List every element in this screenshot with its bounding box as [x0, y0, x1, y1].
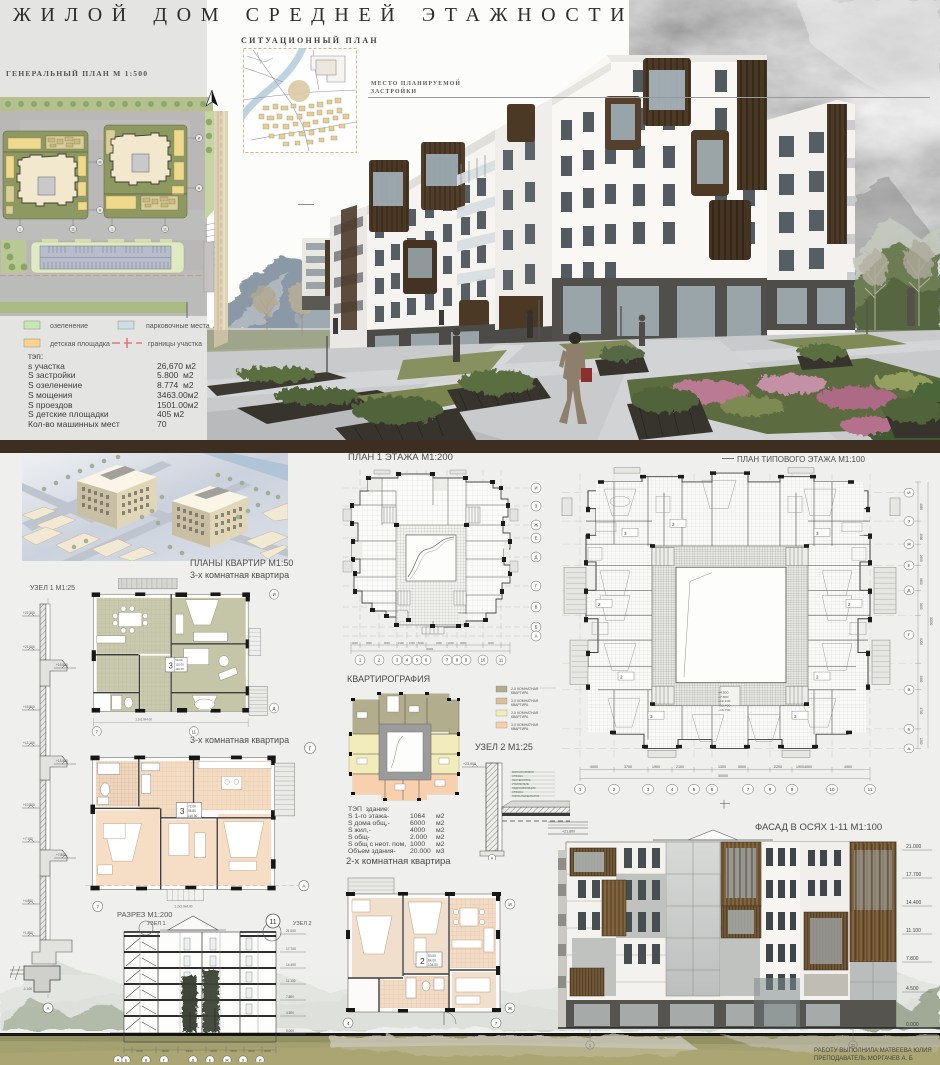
- svg-text:Д: Д: [192, 1058, 195, 1063]
- svg-text:А: А: [908, 746, 911, 751]
- svg-text:11: 11: [163, 227, 167, 231]
- svg-text:14.400: 14.400: [906, 900, 922, 906]
- svg-text:1200: 1200: [919, 738, 923, 745]
- svg-text:1: 1: [589, 1043, 592, 1048]
- svg-text:В: В: [145, 1058, 148, 1063]
- svg-text:4000: 4000: [590, 765, 598, 769]
- svg-text:+4.800: +4.800: [23, 899, 33, 903]
- svg-text:+10.800: +10.800: [23, 803, 35, 807]
- svg-text:6500: 6500: [186, 1049, 193, 1053]
- svg-text:+16.800: +16.800: [23, 705, 35, 709]
- svg-text:+13.800: +13.800: [56, 759, 68, 763]
- svg-text:А: А: [46, 1006, 49, 1011]
- svg-text:4000: 4000: [804, 765, 812, 769]
- svg-text:КВАРТИРА: КВАРТИРА: [511, 703, 529, 707]
- svg-text:104.00: 104.00: [428, 963, 438, 967]
- svg-text:+22.300: +22.300: [23, 611, 35, 615]
- svg-text:7.800: 7.800: [906, 956, 919, 962]
- svg-text:3700: 3700: [624, 765, 632, 769]
- svg-text:3500: 3500: [230, 1049, 237, 1053]
- svg-text:3600: 3600: [919, 578, 923, 585]
- svg-text:Г: Г: [309, 747, 312, 753]
- svg-text:Б: Б: [908, 727, 911, 732]
- svg-text:4000: 4000: [352, 641, 358, 645]
- svg-text:95.80: 95.80: [188, 809, 196, 813]
- svg-text:5000: 5000: [418, 641, 424, 645]
- svg-text:+19.800: +19.800: [56, 663, 68, 667]
- svg-text:4.500: 4.500: [906, 986, 919, 992]
- svg-text:+21.800: +21.800: [562, 830, 575, 834]
- svg-text:Е: Е: [209, 1058, 212, 1063]
- svg-text:3: 3: [180, 806, 185, 816]
- svg-text:10: 10: [829, 787, 835, 792]
- svg-text:2200: 2200: [774, 765, 782, 769]
- svg-text:2000: 2000: [448, 641, 454, 645]
- svg-text:4700: 4700: [136, 1049, 143, 1053]
- svg-text:Е: Е: [908, 563, 911, 568]
- svg-text:3600: 3600: [210, 1049, 217, 1053]
- svg-text:КВАРТИРА: КВАРТИРА: [511, 691, 529, 695]
- svg-text:3600: 3600: [366, 641, 372, 645]
- svg-text:2000: 2000: [436, 641, 442, 645]
- svg-text:+1.800: +1.800: [23, 931, 33, 935]
- svg-text:границы участка: границы участка: [148, 341, 202, 348]
- svg-text:116.00: 116.00: [175, 667, 184, 671]
- svg-text:+7.100: +7.100: [23, 837, 33, 841]
- svg-text:1.2х2.9х4.00: 1.2х2.9х4.00: [135, 718, 152, 722]
- svg-text:Д: Д: [273, 706, 276, 711]
- svg-text:6200: 6200: [919, 638, 923, 645]
- svg-text:0.000: 0.000: [286, 1029, 294, 1033]
- svg-text:М: М: [99, 160, 102, 164]
- svg-text:11: 11: [192, 729, 197, 734]
- svg-text:11.100: 11.100: [286, 979, 296, 983]
- svg-text:детская площадка: детская площадка: [50, 341, 110, 348]
- svg-text:КВАРТИРА: КВАРТИРА: [511, 715, 529, 719]
- svg-text:И: И: [907, 490, 910, 495]
- svg-text:Б: Б: [125, 1058, 128, 1063]
- svg-text:11: 11: [71, 227, 75, 231]
- svg-text:7: 7: [495, 1021, 498, 1026]
- svg-text:21.000: 21.000: [906, 844, 922, 850]
- svg-text:2600: 2600: [919, 533, 923, 540]
- svg-text:11.100: 11.100: [906, 928, 921, 934]
- svg-text:+7.800: +7.800: [56, 853, 66, 857]
- svg-text:11: 11: [269, 919, 276, 926]
- svg-text:30000: 30000: [426, 647, 434, 651]
- svg-text:30000: 30000: [929, 617, 933, 626]
- svg-text:И: И: [534, 486, 537, 491]
- svg-text:+16.700: +16.700: [718, 708, 731, 712]
- svg-text:Ж: Ж: [907, 542, 911, 547]
- svg-text:И: И: [198, 136, 201, 140]
- svg-text:И: И: [273, 592, 276, 597]
- svg-text:1.2х2.9х4.00: 1.2х2.9х4.00: [174, 904, 192, 908]
- svg-text:30000: 30000: [718, 774, 728, 778]
- svg-text:А: А: [117, 1058, 120, 1063]
- svg-text:+13.400: +13.400: [718, 704, 731, 708]
- svg-text:3: 3: [169, 661, 174, 670]
- svg-text:59.00: 59.00: [175, 658, 182, 662]
- svg-text:11: 11: [499, 658, 504, 663]
- svg-text:4.500: 4.500: [286, 1011, 294, 1015]
- svg-text:4: 4: [347, 1021, 350, 1026]
- svg-text:Д: Д: [908, 588, 911, 593]
- svg-text:53.00: 53.00: [428, 954, 436, 958]
- svg-text:В: В: [535, 605, 538, 610]
- svg-text:110.00: 110.00: [188, 814, 197, 818]
- svg-text:4000: 4000: [844, 765, 852, 769]
- svg-text:+7.800: +7.800: [718, 695, 729, 699]
- svg-text:Ж: Ж: [534, 523, 538, 528]
- svg-text:72.00: 72.00: [188, 804, 196, 808]
- svg-text:3000: 3000: [162, 1049, 169, 1053]
- svg-text:3900: 3900: [919, 676, 923, 683]
- svg-text:+4.500: +4.500: [718, 691, 729, 695]
- svg-text:Д: Д: [535, 555, 538, 560]
- svg-text:14.400: 14.400: [286, 963, 296, 967]
- svg-text:4000: 4000: [264, 1049, 271, 1053]
- svg-text:Ж: Ж: [225, 1058, 229, 1063]
- svg-text:2100: 2100: [398, 641, 404, 645]
- svg-text:Е: Е: [535, 536, 538, 541]
- svg-text:1900: 1900: [652, 765, 660, 769]
- svg-text:3600: 3600: [919, 603, 923, 610]
- svg-text:3600: 3600: [460, 641, 466, 645]
- svg-text:7.800: 7.800: [286, 995, 294, 999]
- svg-text:+23.000: +23.000: [463, 762, 476, 766]
- svg-text:КВАРТИРА: КВАРТИРА: [511, 727, 529, 731]
- svg-text:Б: Б: [535, 625, 538, 630]
- svg-text:И: И: [508, 902, 511, 907]
- svg-text:А: А: [535, 634, 538, 639]
- svg-text:2: 2: [420, 956, 425, 966]
- svg-text:1300: 1300: [718, 765, 726, 769]
- svg-text:1900: 1900: [796, 765, 804, 769]
- svg-text:17.700: 17.700: [286, 947, 296, 951]
- svg-text:4060: 4060: [919, 503, 923, 510]
- svg-text:17.700: 17.700: [906, 872, 922, 878]
- svg-text:4700: 4700: [919, 708, 923, 715]
- svg-text:21.000: 21.000: [286, 929, 296, 933]
- svg-text:1500: 1500: [409, 641, 415, 645]
- svg-text:2100: 2100: [676, 765, 684, 769]
- svg-text:5000: 5000: [738, 765, 746, 769]
- svg-text:+10.100: +10.100: [718, 699, 731, 703]
- svg-text:10: 10: [481, 658, 486, 663]
- svg-text:84.00: 84.00: [428, 959, 436, 963]
- svg-text:110.00: 110.00: [175, 662, 184, 666]
- svg-text:1: 1: [19, 227, 21, 231]
- svg-text:2650: 2650: [919, 555, 923, 562]
- svg-text:И: И: [259, 1058, 262, 1063]
- svg-text:0.000: 0.000: [906, 1022, 919, 1028]
- svg-text:3600: 3600: [248, 1049, 255, 1053]
- svg-text:+21.000: +21.000: [23, 645, 35, 649]
- svg-text:4000: 4000: [488, 641, 494, 645]
- svg-text:парковочные места: парковочные места: [146, 323, 210, 330]
- svg-text:11: 11: [868, 787, 873, 792]
- svg-text:11: 11: [851, 1043, 856, 1048]
- svg-text:1: 1: [111, 227, 113, 231]
- svg-text:В: В: [908, 687, 911, 692]
- svg-text:озеленение: озеленение: [50, 323, 88, 330]
- svg-text:+13.100: +13.100: [23, 741, 35, 745]
- svg-text:-1.100: -1.100: [23, 987, 32, 991]
- svg-text:3600: 3600: [384, 641, 390, 645]
